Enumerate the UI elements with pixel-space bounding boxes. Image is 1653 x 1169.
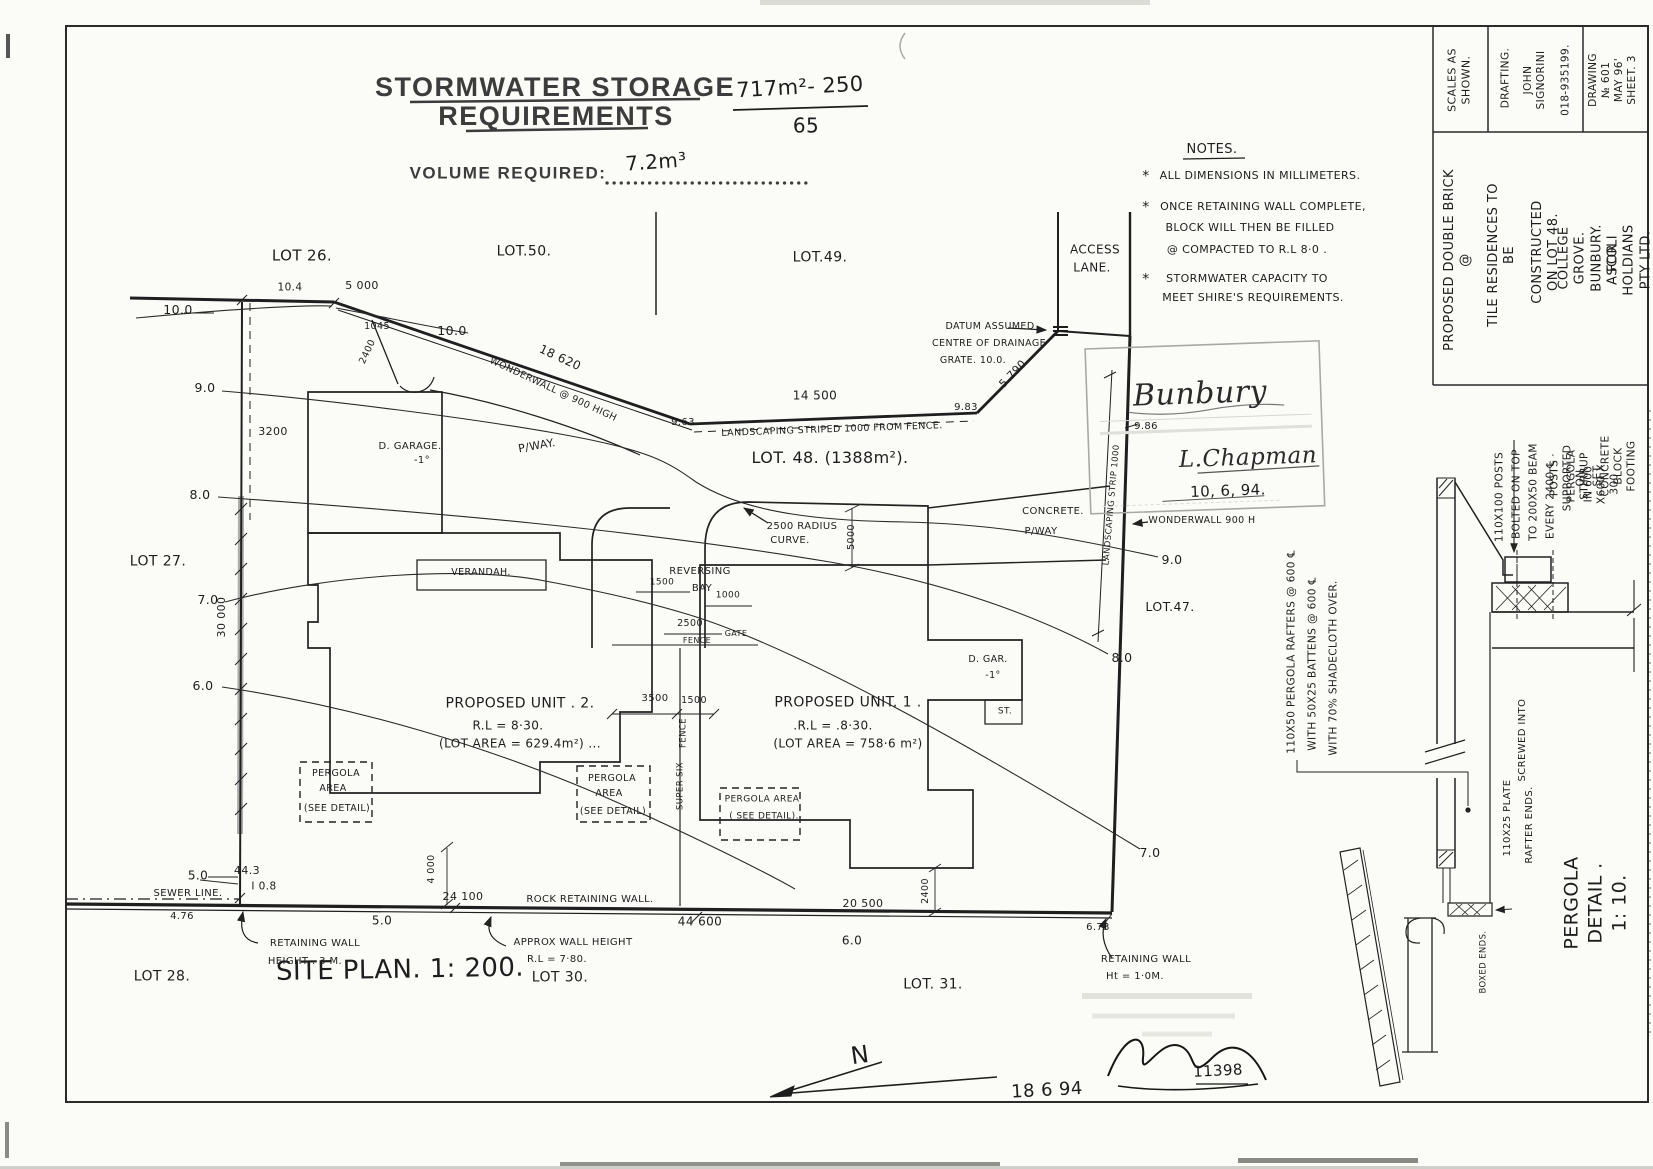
pergola-area-label: AREA <box>595 788 622 800</box>
titleblock-desc-2: TILE RESIDENCES TO BE <box>1486 180 1519 331</box>
detail-note: SCREWED INTO <box>1517 699 1530 782</box>
access-lane-label: LANE. <box>1073 261 1111 276</box>
dimension: 5 000 <box>345 279 379 293</box>
gate-label: GATE <box>725 629 748 639</box>
drawing-title-line2: REQUIREMENTS <box>438 100 674 134</box>
detail-note: TO 200X50 BEAM <box>1527 443 1540 541</box>
dimension: 4 000 <box>426 854 438 883</box>
titleblock-drafter-name: JOHN SIGNORINI <box>1522 51 1548 110</box>
landscaping-label: LANDSCAPING STRIPED 1000 FROM FENCE. <box>721 420 943 440</box>
garage-label: D. GAR. <box>968 654 1007 666</box>
detail-note: 110X100 POSTS <box>1493 452 1506 542</box>
council-stamp-text: Bunbury <box>1132 373 1267 415</box>
dimension: 3500 <box>641 693 668 706</box>
dimension: 1000 <box>716 590 741 601</box>
radius-note: 2500 RADIUS <box>767 521 838 534</box>
volume-required-label: VOLUME REQUIRED: <box>410 162 607 183</box>
lot-27-label: LOT 27. <box>130 553 186 571</box>
dimension: 3200 <box>258 425 288 439</box>
spot-level: 9.83 <box>954 402 978 415</box>
unit1-area: (LOT AREA = 758·6 m²) <box>773 737 922 752</box>
spot-level: 44.3 <box>234 864 260 878</box>
plan-title: SITE PLAN. 1: 200. <box>276 952 524 989</box>
detail-note: CONCRETE BLOCK FOOTING <box>1599 436 1638 497</box>
detail-note: WITH 50X25 BATTENS @ 600 ℄ <box>1306 577 1319 750</box>
note-2a: ONCE RETAINING WALL COMPLETE, <box>1160 200 1366 214</box>
titleblock-phone: 018-935199. <box>1559 44 1572 116</box>
titleblock-scales: SCALES AS SHOWN. <box>1445 48 1473 112</box>
reversing-bay-label: REVERSING <box>669 566 731 579</box>
lot-26-label: LOT 26. <box>272 247 332 266</box>
lot-31-label: LOT. 31. <box>903 976 963 994</box>
detail-note: RAFTER ENDS. <box>1524 786 1537 863</box>
lot-49-label: LOT.49. <box>793 249 848 267</box>
fence-label: FENCE <box>679 718 690 748</box>
dimension: 44 600 <box>678 915 722 930</box>
lot-28-label: LOT 28. <box>134 968 190 986</box>
datum-note: DATUM ASSUMED <box>945 321 1034 333</box>
dimension: 1500 <box>681 695 707 707</box>
dimension: 24 100 <box>443 890 484 904</box>
dimension: 20 500 <box>843 897 884 911</box>
detail-note: BOXED ENDS. <box>1479 930 1490 993</box>
titleblock-desc-5: ASCOLI HOLDIANS PTY LTD. <box>1606 224 1653 295</box>
note-2c: @ COMPACTED TO R.L 8·0 . <box>1167 243 1327 257</box>
dimension: 30 000 <box>215 597 229 638</box>
dimension: 1045 <box>364 321 390 333</box>
contour-label: 7.0 <box>1139 845 1160 861</box>
datum-note: GRATE. 10.0. <box>940 355 1006 367</box>
fence-label: SUPER SIX <box>676 762 687 810</box>
detail-title: PERGOLA DETAIL . 1: 10. <box>1560 856 1631 949</box>
dimension: 2400 <box>357 338 379 366</box>
contour-label: 5.0 <box>188 869 208 884</box>
calc-numerator: 717m²- 250 <box>736 71 864 104</box>
dimension: 1500 <box>650 577 675 588</box>
contour-label: 10.0 <box>437 323 466 339</box>
note-bullet: * <box>1142 168 1149 186</box>
spot-level: 10.4 <box>278 281 303 294</box>
detail-note: WITH 70% SHADECLOTH OVER. <box>1327 580 1340 755</box>
landscaping-strip-label: LANDSCAPING STRIP 1000 <box>1101 444 1122 566</box>
access-lane-label: ACCESS <box>1070 243 1120 258</box>
concrete-pway-label: CONCRETE. <box>1022 506 1084 519</box>
wall-height-note: APPROX WALL HEIGHT <box>514 937 633 950</box>
datum-note: CENTRE OF DRAINAGE <box>932 338 1046 350</box>
pergola-area-label: PERGOLA <box>312 768 360 780</box>
notes-title: NOTES. <box>1187 142 1238 158</box>
unit2-title: PROPOSED UNIT . 2. <box>446 695 595 713</box>
note-3b: MEET SHIRE'S REQUIREMENTS. <box>1162 291 1344 305</box>
titleblock-desc-1: PROPOSED DOUBLE BRICK @ <box>1442 163 1475 358</box>
pergola-area-label: (SEE DETAIL) <box>304 803 370 815</box>
verandah-label: VERANDAH. <box>451 567 511 579</box>
retaining-wall-note: Ht = 1·0M. <box>1106 971 1164 984</box>
dimension: 2400 <box>920 878 932 904</box>
contour-label: 9.0 <box>1161 552 1182 568</box>
lot-48-label: LOT. 48. (1388m²). <box>751 448 908 468</box>
detail-note: 110X25 PLATE <box>1502 780 1515 857</box>
spot-level: 9.63 <box>671 417 695 430</box>
lot-30-label: LOT 30. <box>532 969 588 987</box>
retaining-wall-note: RETAINING WALL <box>1101 954 1191 967</box>
calc-denominator: 65 <box>793 114 819 139</box>
dimension: 5000 <box>846 524 858 550</box>
wonderwall-label: WONDERWALL @ 900 HIGH <box>487 355 618 425</box>
stamp-date: 10, 6, 94. <box>1190 480 1266 501</box>
north-label: N <box>849 1039 871 1071</box>
sewer-line-label: SEWER LINE. <box>154 888 223 901</box>
dimension: 18 620 <box>537 342 584 374</box>
volume-required-value: 7.2m³ <box>625 147 688 176</box>
pergola-area-label: (SEE DETAIL) <box>580 806 646 818</box>
lot-47-label: LOT.47. <box>1145 599 1194 615</box>
annotation-layer: STORMWATER STORAGEREQUIREMENTS717m²- 250… <box>0 0 1653 1169</box>
spot-level: 9.86 <box>1134 421 1158 434</box>
concrete-pway-label: P/WAY <box>1025 526 1058 539</box>
contour-label: 8.0 <box>189 487 210 503</box>
contour-label: 9.0 <box>194 380 215 396</box>
store-label: ST. <box>998 706 1012 717</box>
detail-note: BOLTED ON TOP <box>1510 449 1523 539</box>
contour-label: 5.0 <box>372 914 392 929</box>
note-bullet: * <box>1142 199 1149 217</box>
contour-label: 10.0 <box>163 302 192 318</box>
rock-wall-label: ROCK RETAINING WALL. <box>526 894 653 907</box>
retaining-wall-note: RETAINING WALL <box>270 938 360 951</box>
garage-label: D. GARAGE. <box>378 441 441 454</box>
garage-fall-label: -1° <box>985 670 1000 682</box>
titleblock-drawing-number: DRAWING № 601 MAY 96' SHEET. 3 <box>1587 53 1640 107</box>
note-2b: BLOCK WILL THEN BE FILLED <box>1165 221 1334 235</box>
dimension: 14 500 <box>793 389 837 404</box>
radius-note: CURVE. <box>770 535 809 548</box>
pway-label: P/WAY. <box>517 436 557 456</box>
contour-label: 8.0 <box>1111 650 1132 666</box>
spot-level: 6.73 <box>1086 922 1110 935</box>
unit1-rl: .R.L = .8·30. <box>793 719 872 734</box>
contour-label: 6.0 <box>192 678 213 694</box>
approval-date: 18 6 94 <box>1011 1078 1084 1104</box>
note-3a: STORMWATER CAPACITY TO <box>1166 272 1328 286</box>
garage-fall-label: -1° <box>414 455 430 468</box>
lot-50-label: LOT.50. <box>497 243 552 261</box>
unit2-rl: R.L = 8·30. <box>472 719 543 734</box>
pergola-area-label: PERGOLA AREA <box>725 794 800 805</box>
pergola-area-label: ( SEE DETAIL). <box>729 811 799 822</box>
wonderwall-label: WONDERWALL 900 H <box>1148 515 1255 527</box>
unit1-title: PROPOSED UNIT. 1 . <box>774 694 921 712</box>
pergola-area-label: PERGOLA <box>588 773 636 785</box>
contour-label: 6.0 <box>842 934 862 949</box>
spot-level: 4.76 <box>170 911 194 924</box>
unit2-area: (LOT AREA = 629.4m²) ... <box>439 737 601 752</box>
wall-height-note: R.L = 7·80. <box>527 954 587 967</box>
stamp-signature: L.Chapman <box>1178 441 1317 475</box>
pergola-area-label: AREA <box>319 783 346 795</box>
note-bullet: * <box>1142 271 1149 289</box>
fence-label: FENCE <box>683 636 711 646</box>
spot-level: I 0.8 <box>251 880 276 893</box>
drawing-sheet: STORMWATER STORAGEREQUIREMENTS717m²- 250… <box>0 0 1653 1169</box>
detail-note: 110X50 PERGOLA RAFTERS @ 600 ℄ <box>1285 550 1298 753</box>
note-1: ALL DIMENSIONS IN MILLIMETERS. <box>1160 169 1361 183</box>
dimension: 2500 <box>677 618 703 630</box>
reversing-bay-label: BAY <box>692 583 712 596</box>
titleblock-drafting-label: DRAFTING. <box>1499 48 1512 108</box>
approval-number: 11398 <box>1193 1060 1244 1081</box>
